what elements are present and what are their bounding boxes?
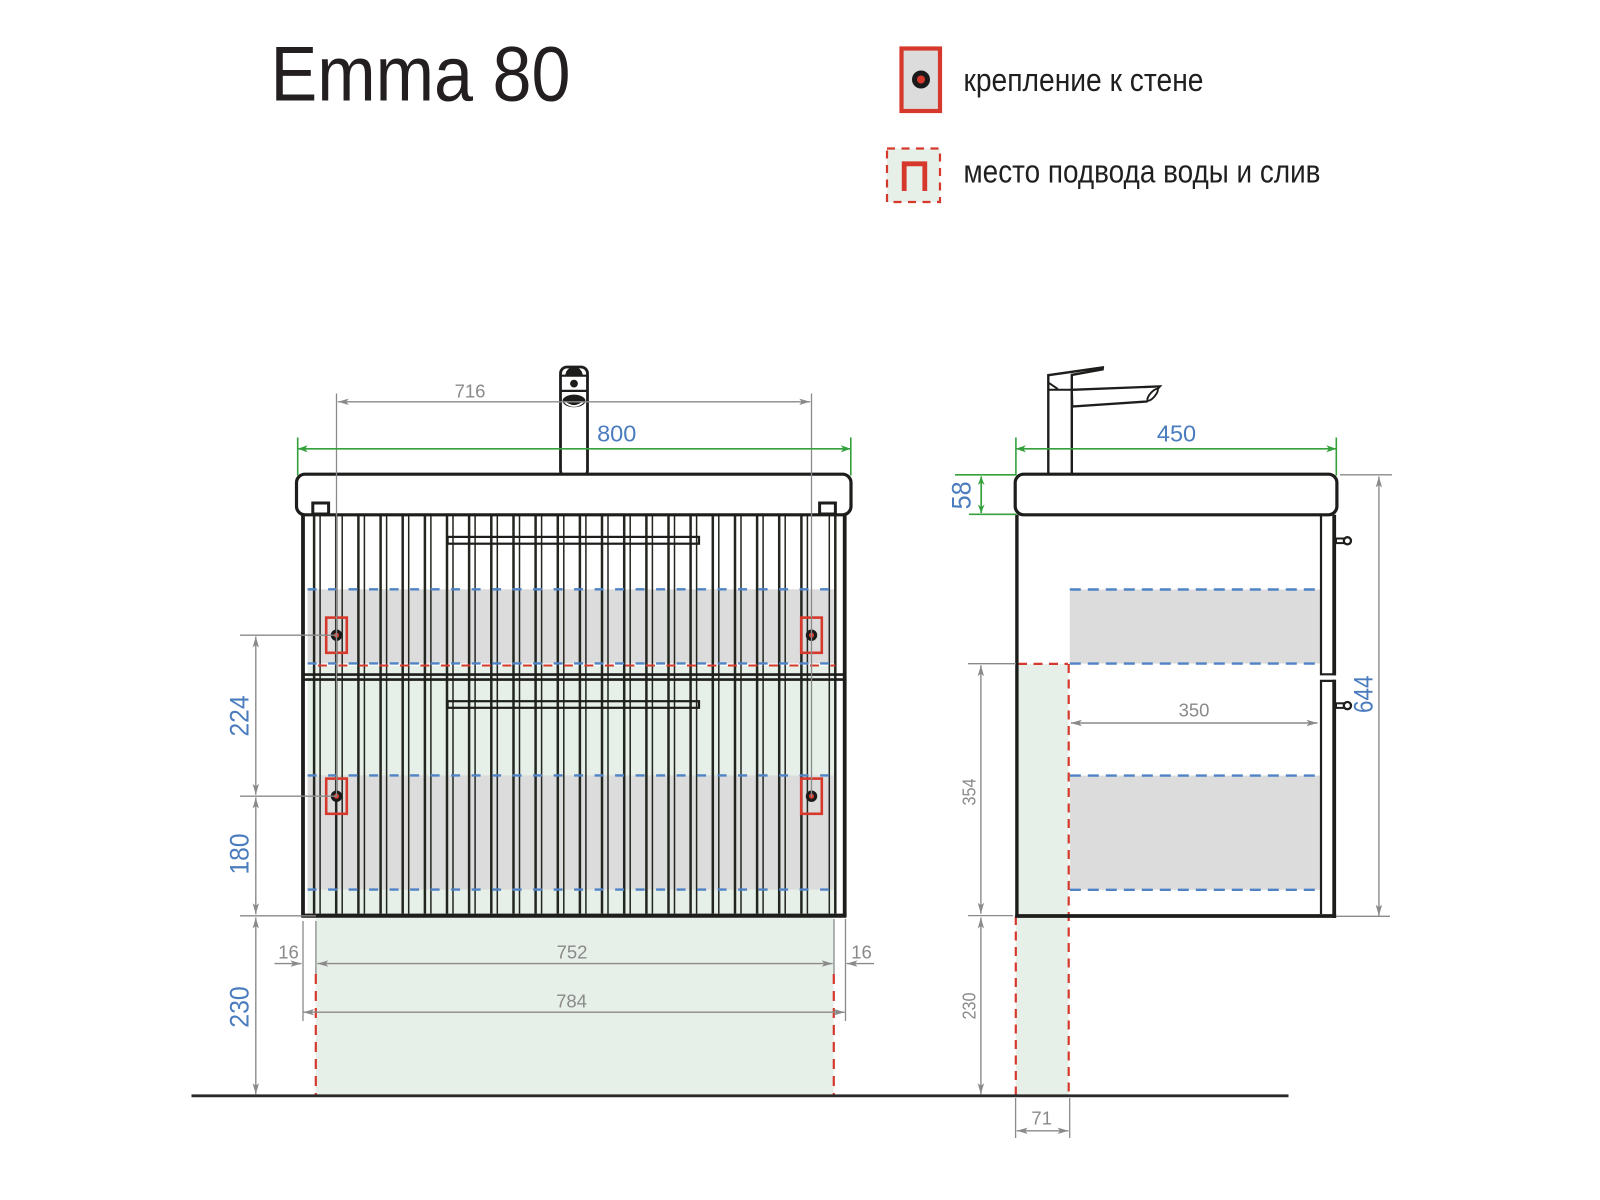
svg-text:крепление к стене: крепление к стене	[964, 62, 1204, 98]
svg-text:230: 230	[959, 993, 980, 1020]
svg-text:354: 354	[959, 779, 980, 806]
svg-text:71: 71	[1031, 1108, 1052, 1129]
svg-text:784: 784	[556, 991, 587, 1012]
svg-text:450: 450	[1157, 421, 1196, 447]
svg-text:Emma 80: Emma 80	[271, 30, 571, 118]
svg-text:место подвода воды и слив: место подвода воды и слив	[964, 154, 1321, 190]
svg-text:350: 350	[1179, 700, 1210, 721]
svg-text:180: 180	[225, 834, 255, 875]
svg-text:230: 230	[225, 986, 255, 1028]
svg-text:16: 16	[278, 942, 299, 963]
svg-text:752: 752	[557, 942, 588, 963]
svg-text:16: 16	[851, 942, 872, 963]
svg-text:58: 58	[947, 481, 977, 509]
svg-text:716: 716	[455, 381, 486, 402]
svg-text:224: 224	[225, 696, 255, 737]
svg-text:644: 644	[1349, 675, 1379, 713]
svg-text:800: 800	[597, 421, 636, 447]
